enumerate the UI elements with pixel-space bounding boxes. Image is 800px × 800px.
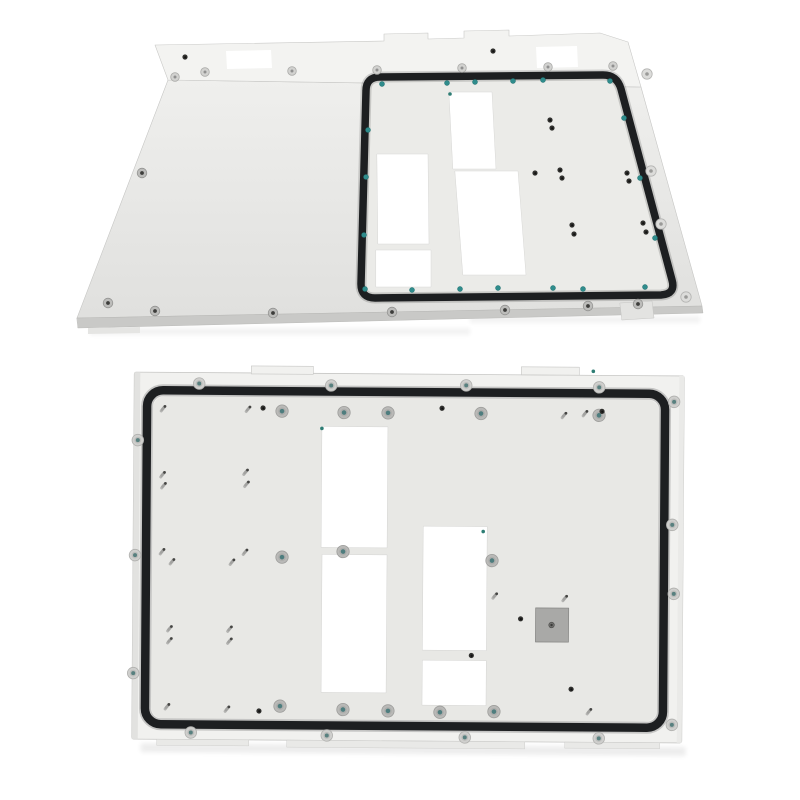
pin-part	[163, 471, 166, 474]
screwDark-fastener	[633, 299, 643, 309]
hole-part	[520, 618, 522, 620]
bottom-panel-tab-left	[251, 366, 313, 374]
screw-part	[386, 709, 391, 714]
pin-part	[495, 592, 498, 595]
hole-fastener	[568, 687, 573, 692]
pin-part	[586, 410, 589, 413]
screw-fastener	[274, 700, 286, 712]
tealSmall-part	[410, 288, 415, 293]
screwDark-part	[271, 311, 275, 315]
hole-part	[492, 50, 494, 52]
screwEdge-fastener	[193, 378, 205, 390]
cutout-center-lower	[455, 171, 526, 275]
screw-fastener	[382, 407, 394, 419]
screw-part	[341, 707, 346, 712]
screwEdge-part	[133, 553, 137, 557]
tealSmall-part	[551, 286, 556, 291]
tealSmall-fastener	[643, 285, 648, 290]
screwEdge-part	[670, 523, 674, 527]
tealSmall-fastener	[445, 81, 450, 86]
rivet-fastener	[458, 64, 467, 73]
tealSmall-part	[622, 116, 627, 121]
screw-part	[492, 709, 497, 714]
screwEdge-part	[597, 736, 601, 740]
screwDark-part	[503, 308, 507, 312]
pin-part	[164, 482, 167, 485]
hole-fastener	[260, 405, 265, 410]
artifact-part	[448, 92, 452, 96]
hole-part	[626, 172, 628, 174]
screwDark-fastener	[387, 307, 397, 317]
screwDark-fastener	[500, 305, 510, 315]
rivet-part	[461, 67, 464, 70]
hole-part	[471, 655, 473, 657]
rivet-part	[547, 66, 550, 69]
mounting-plate-pin-tip	[550, 624, 552, 626]
tealSmall-fastener	[458, 287, 463, 292]
bottom-panel-tab-right	[521, 367, 579, 375]
hole-part	[573, 233, 575, 235]
screwEdge-part	[597, 385, 601, 389]
screwEdge-fastener	[593, 382, 605, 394]
tealSmall-fastener	[380, 82, 385, 87]
screwDark-part	[586, 304, 590, 308]
pin-part	[230, 625, 233, 628]
screwLight-part	[659, 222, 663, 226]
screwEdge-fastener	[668, 396, 680, 408]
tealSmall-fastener	[551, 286, 556, 291]
screwEdge-part	[464, 383, 468, 387]
hole-part	[570, 688, 572, 690]
hole-fastener	[182, 54, 187, 59]
hole-fastener	[518, 616, 523, 621]
screw-fastener	[337, 703, 349, 715]
screwDark-part	[636, 302, 640, 306]
hole-fastener	[569, 222, 574, 227]
screwLight-part	[645, 72, 649, 76]
tealSmall-part	[380, 82, 385, 87]
hole-part	[559, 169, 561, 171]
tealSmall-fastener	[653, 236, 658, 241]
hole-fastener	[640, 220, 645, 225]
screwDark-fastener	[150, 306, 160, 316]
flange-cutout-right	[536, 46, 578, 68]
hole-fastener	[549, 125, 554, 130]
rivet-fastener	[373, 66, 382, 75]
screwDark-fastener	[583, 301, 593, 311]
screwDark-part	[140, 171, 144, 175]
screwEdge-part	[131, 671, 135, 675]
screwEdge-part	[672, 592, 676, 596]
tealSmall-part	[643, 285, 648, 290]
screw-fastener	[434, 706, 446, 718]
screw-part	[438, 710, 443, 715]
artifact-part	[592, 369, 596, 373]
tealSmall-part	[362, 233, 367, 238]
tealSmall-fastener	[363, 287, 368, 292]
pin-part	[230, 637, 233, 640]
screwEdge-fastener	[127, 667, 139, 679]
tealSmall-part	[496, 286, 501, 291]
screw-part	[597, 413, 602, 418]
screwLight-part	[684, 295, 688, 299]
rivet-fastener	[201, 68, 210, 77]
screwEdge-part	[325, 733, 329, 737]
rivet-part	[612, 65, 615, 68]
rivet-fastener	[288, 67, 297, 76]
hole-part	[645, 231, 647, 233]
pin-part	[565, 412, 568, 415]
hole-part	[262, 407, 264, 409]
cutout-center-upper	[449, 92, 496, 169]
hole-part	[534, 172, 536, 174]
screwEdge-fastener	[459, 732, 471, 744]
screw-part	[278, 704, 283, 709]
rivet-part	[174, 76, 177, 79]
cutout-left-mid	[377, 154, 429, 244]
hole-fastener	[532, 170, 537, 175]
tealSmall-fastener	[622, 116, 627, 121]
screwDark-fastener	[137, 168, 147, 178]
artifact-fastener	[448, 92, 452, 96]
screw-part	[342, 410, 347, 415]
rivet-fastener	[544, 63, 553, 72]
screwLight-fastener	[656, 219, 666, 229]
pin-part	[167, 703, 170, 706]
screw-part	[341, 549, 346, 554]
screwEdge-fastener	[666, 719, 678, 731]
pin-part	[170, 637, 173, 640]
hole-part	[184, 56, 186, 58]
pin-part	[227, 705, 230, 708]
screw-fastener	[488, 705, 500, 717]
bottom-panel-lip-3	[565, 742, 660, 749]
artifact-fastener	[481, 530, 485, 534]
screwEdge-part	[329, 383, 333, 387]
screw-fastener	[276, 405, 288, 417]
bottom-panel	[127, 364, 688, 756]
panel-product-photo	[0, 0, 800, 800]
hole-part	[441, 407, 443, 409]
tealSmall-fastener	[638, 176, 643, 181]
pin-part	[246, 469, 249, 472]
hole-part	[561, 177, 563, 179]
artifact-part	[320, 427, 324, 431]
screwLight-fastener	[681, 292, 691, 302]
top-panel-bottom-lip	[88, 327, 140, 334]
screw-fastener	[475, 407, 487, 419]
tealSmall-fastener	[608, 79, 613, 84]
flange-cutout-left	[226, 50, 272, 69]
tealSmall-fastener	[362, 233, 367, 238]
screw-part	[479, 411, 484, 416]
tealSmall-part	[364, 175, 369, 180]
hole-part	[601, 411, 603, 413]
tealSmall-fastener	[366, 128, 371, 133]
screwEdge-part	[670, 723, 674, 727]
screwEdge-fastener	[129, 549, 141, 561]
screwEdge-fastener	[132, 434, 144, 446]
rivet-fastener	[171, 73, 180, 82]
tealSmall-part	[608, 79, 613, 84]
screwDark-fastener	[268, 308, 278, 318]
cutout-left-upper	[321, 426, 388, 547]
screwDark-part	[153, 309, 157, 313]
tealSmall-fastener	[364, 175, 369, 180]
screwEdge-fastener	[460, 380, 472, 392]
pin-part	[164, 405, 167, 408]
hole-fastener	[439, 406, 444, 411]
rivet-fastener	[609, 62, 618, 71]
screwEdge-fastener	[325, 380, 337, 392]
pin-part	[170, 625, 173, 628]
hole-part	[628, 180, 630, 182]
pin-part	[232, 558, 235, 561]
screwEdge-fastener	[668, 588, 680, 600]
cutout-left-lower	[321, 554, 387, 692]
hole-fastener	[469, 653, 474, 658]
tealSmall-part	[638, 176, 643, 181]
screwLight-part	[649, 169, 653, 173]
tealSmall-part	[445, 81, 450, 86]
hole-part	[642, 222, 644, 224]
tealSmall-part	[653, 236, 658, 241]
tealSmall-part	[363, 287, 368, 292]
hole-fastener	[256, 708, 261, 713]
tealSmall-fastener	[581, 287, 586, 292]
screwEdge-fastener	[666, 519, 678, 531]
artifact-part	[481, 530, 485, 534]
screw-part	[386, 411, 391, 416]
hole-fastener	[599, 409, 604, 414]
tealSmall-part	[541, 78, 546, 83]
screw-part	[280, 555, 285, 560]
hole-fastener	[571, 231, 576, 236]
screw-fastener	[382, 705, 394, 717]
pin-part	[565, 595, 568, 598]
artifact-fastener	[320, 427, 324, 431]
pin-part	[247, 481, 250, 484]
screwEdge-fastener	[321, 730, 333, 742]
rivet-part	[204, 71, 207, 74]
tealSmall-fastener	[473, 80, 478, 85]
screwEdge-part	[197, 382, 201, 386]
screwEdge-part	[463, 735, 467, 739]
bottom-panel-lip-1	[157, 739, 249, 746]
screw-fastener	[276, 551, 288, 563]
pin-part	[163, 548, 166, 551]
pin-part	[589, 708, 592, 711]
hole-fastener	[547, 117, 552, 122]
pin-part	[249, 406, 252, 409]
screw-part	[280, 409, 285, 414]
tealSmall-fastener	[541, 78, 546, 83]
rivet-part	[376, 69, 379, 72]
screwLight-fastener	[642, 69, 652, 79]
pin-part	[246, 549, 249, 552]
screw-fastener	[337, 545, 349, 557]
screw-fastener	[338, 406, 350, 418]
pin-part	[172, 558, 175, 561]
hole-part	[549, 119, 551, 121]
screwEdge-fastener	[185, 727, 197, 739]
tealSmall-part	[458, 287, 463, 292]
tealSmall-part	[581, 287, 586, 292]
cutout-right-lower	[422, 660, 486, 705]
screwEdge-part	[136, 438, 140, 442]
screw-part	[490, 558, 495, 563]
screw-fastener	[486, 554, 498, 566]
gasket-inner-face-bottom	[151, 396, 659, 722]
tealSmall-fastener	[410, 288, 415, 293]
top-panel	[77, 30, 703, 335]
cutout-left-low	[376, 250, 431, 287]
hole-fastener	[559, 175, 564, 180]
tealSmall-part	[366, 128, 371, 133]
photo-canvas	[0, 0, 800, 800]
hole-part	[571, 224, 573, 226]
artifact-fastener	[592, 369, 596, 373]
cutout-right-upper	[422, 526, 487, 650]
top-panel-shadow	[90, 328, 470, 335]
bottom-panel-lip-2	[287, 740, 525, 749]
rivet-part	[291, 70, 294, 73]
tealSmall-fastener	[511, 79, 516, 84]
screwDark-part	[390, 310, 394, 314]
hole-part	[551, 127, 553, 129]
screwEdge-part	[189, 730, 193, 734]
hole-fastener	[626, 178, 631, 183]
tealSmall-fastener	[496, 286, 501, 291]
screwDark-part	[106, 301, 110, 305]
hole-fastener	[490, 48, 495, 53]
screwDark-fastener	[103, 298, 113, 308]
hole-fastener	[624, 170, 629, 175]
tealSmall-part	[511, 79, 516, 84]
screwEdge-part	[672, 400, 676, 404]
screwLight-fastener	[646, 166, 656, 176]
hole-fastener	[557, 167, 562, 172]
screwEdge-fastener	[593, 733, 605, 745]
hole-fastener	[643, 229, 648, 234]
tealSmall-part	[473, 80, 478, 85]
hole-part	[258, 710, 260, 712]
